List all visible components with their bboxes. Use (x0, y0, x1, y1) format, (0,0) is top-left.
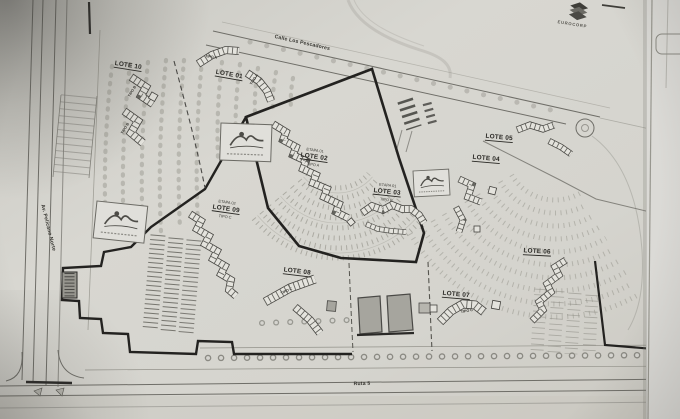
photo-vignette (0, 0, 680, 419)
site-plan-canvas: LOTE 10 LOTE 01 ETAPA 01 LOTE 02 TIPO A … (0, 0, 680, 419)
photographed-site-plan: LOTE 10 LOTE 01 ETAPA 01 LOTE 02 TIPO A … (0, 0, 680, 419)
